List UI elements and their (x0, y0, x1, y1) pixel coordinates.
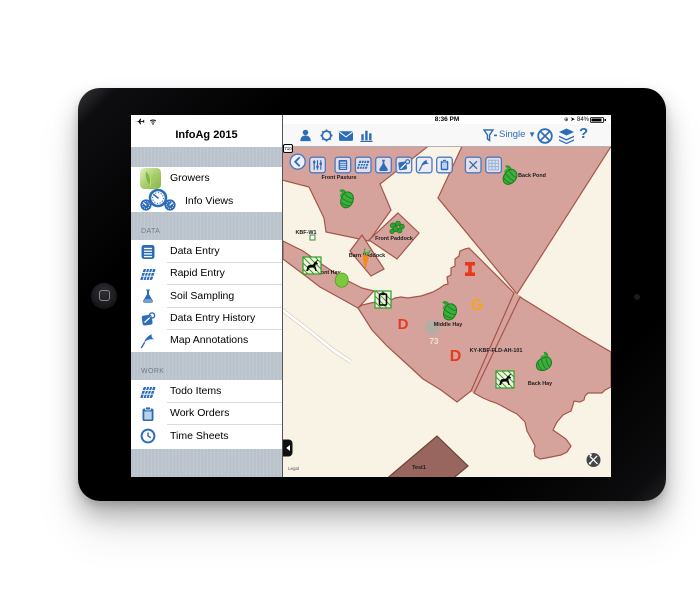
svg-text:Front Pasture: Front Pasture (321, 175, 356, 181)
svg-text:73: 73 (430, 337, 439, 346)
svg-text:Test1: Test1 (412, 465, 426, 471)
svg-text:D: D (398, 316, 409, 333)
svg-text:KY-KBF-FLD-AH-101: KY-KBF-FLD-AH-101 (470, 348, 523, 354)
svg-text:Back Hay: Back Hay (528, 381, 552, 387)
svg-text:Back Pond: Back Pond (518, 173, 546, 179)
svg-text:Legal: Legal (288, 466, 299, 471)
svg-text:Front Paddock: Front Paddock (375, 236, 413, 242)
svg-text:D: D (450, 348, 462, 365)
svg-text:Middle Hay: Middle Hay (434, 322, 462, 328)
svg-text:G: G (471, 297, 483, 314)
